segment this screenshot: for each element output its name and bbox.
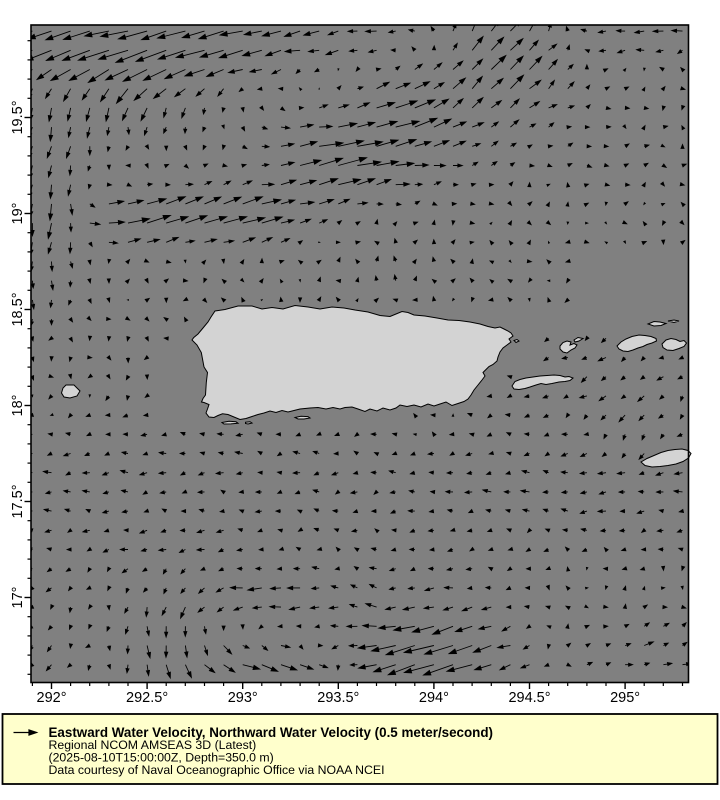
svg-text:19°: 19° [10,203,26,225]
svg-text:19.5°: 19.5° [10,100,26,134]
svg-text:Data courtesy of Naval Oceanog: Data courtesy of Naval Oceanographic Off… [49,763,385,777]
svg-text:17.5°: 17.5° [10,484,26,518]
svg-text:293.5°: 293.5° [317,690,359,706]
svg-text:294.5°: 294.5° [508,690,550,706]
svg-text:295°: 295° [610,690,640,706]
svg-text:293°: 293° [228,690,258,706]
svg-text:294°: 294° [419,690,449,706]
svg-text:292°: 292° [37,690,67,706]
svg-text:17°: 17° [10,587,26,609]
svg-text:18.5°: 18.5° [10,292,26,326]
svg-text:292.5°: 292.5° [126,690,168,706]
svg-text:18°: 18° [10,395,26,417]
